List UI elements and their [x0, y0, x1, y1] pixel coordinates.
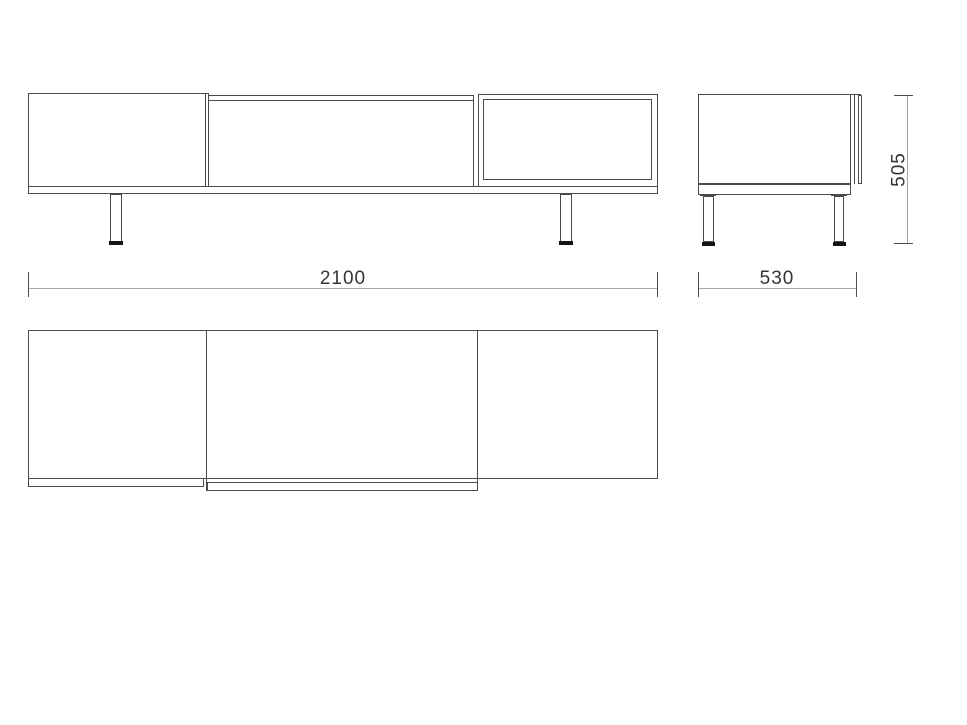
sv-leg-back: [703, 196, 714, 242]
dim-height-tick-top: [894, 95, 913, 96]
sv-front-edge-line: [854, 94, 855, 184]
dim-width-label: 2100: [293, 270, 393, 287]
fv-leg-left-foot: [109, 241, 123, 245]
fv-leg-left: [110, 194, 122, 242]
technical-drawing-canvas: 2100 530 505: [0, 0, 967, 725]
fv-left-door-edge-line: [205, 93, 206, 186]
fv-leg-right-foot: [559, 241, 573, 245]
pv-middle-door-top-strip: [207, 482, 478, 491]
fv-leg-right: [560, 194, 572, 242]
sv-leg-front: [834, 196, 844, 242]
dim-height-label: 505: [891, 120, 908, 220]
sv-leg-front-foot: [833, 242, 846, 246]
sv-leg-back-foot: [702, 242, 715, 246]
dim-depth-label: 530: [727, 270, 827, 287]
pv-left-door-top-strip: [28, 478, 204, 487]
pv-divider-left: [206, 330, 207, 491]
dim-depth-tick-left: [698, 272, 699, 297]
fv-middle-door-top-edge-line: [209, 100, 473, 101]
dim-height-tick-bottom: [894, 243, 913, 244]
fv-left-door-panel: [28, 93, 209, 187]
pv-carcass-outline: [28, 330, 658, 479]
dim-depth-tick-right: [856, 272, 857, 297]
sv-carcass: [698, 94, 851, 184]
fv-middle-sliding-door: [208, 95, 474, 187]
sv-plinth: [698, 184, 851, 195]
pv-divider-right: [477, 331, 478, 491]
dim-width-tick-right: [657, 272, 658, 297]
sv-door-edge-strip: [858, 95, 862, 184]
dim-width-tick-left: [28, 272, 29, 297]
fv-right-door-face: [483, 99, 652, 180]
